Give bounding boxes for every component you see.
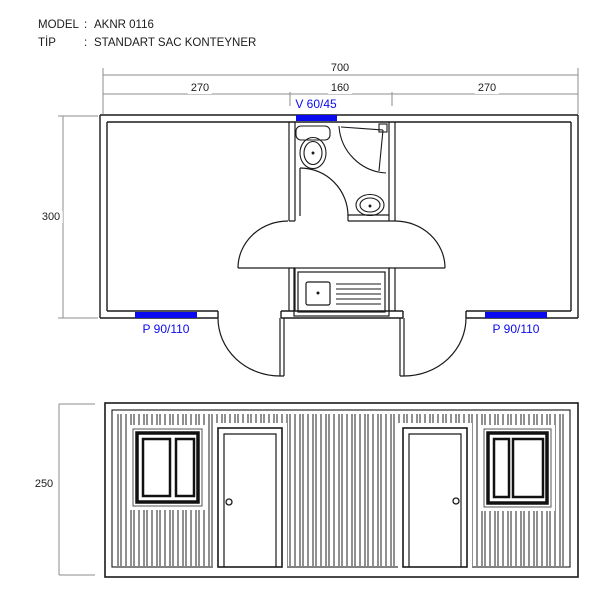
top-window-marker: [296, 115, 337, 121]
top-window-size-label: V 60/45: [295, 97, 336, 111]
bottom-right-window-size-label: P 90/110: [493, 322, 540, 336]
elevation-door-right: [398, 423, 472, 568]
door-knob-left: [226, 499, 232, 505]
front-elevation: [59, 403, 578, 577]
type-separator: :: [84, 34, 94, 52]
type-label: TİP: [38, 34, 84, 52]
elevation-window-left: [129, 425, 206, 510]
dim-total-width-label: 700: [328, 62, 352, 74]
plan-exterior-walls: [100, 115, 578, 318]
bottom-left-window-size-label: P 90/110: [143, 322, 190, 336]
toilet: [296, 126, 330, 169]
model-value: AKNR 0116: [94, 16, 154, 34]
bottom-right-window-marker: [485, 312, 547, 318]
right-room-door: [395, 221, 445, 268]
model-separator: :: [84, 16, 94, 34]
bottom-left-window-marker: [135, 312, 197, 318]
kitchen-counter: [294, 268, 389, 316]
plan-window-markers: [135, 115, 547, 318]
elevation-dimension-lines: [59, 404, 95, 575]
dim-left-segment-label: 270: [188, 82, 212, 94]
type-line: TİP:STANDART SAC KONTEYNER: [38, 34, 256, 52]
dim-mid-segment-label: 160: [328, 82, 352, 94]
bathroom-sink: [356, 195, 384, 216]
elevation-window-right: [480, 425, 555, 511]
left-entrance-door: [218, 318, 284, 376]
dim-elevation-height-label: 250: [32, 478, 56, 490]
left-room-door: [238, 221, 289, 268]
title-block: MODEL:AKNR 0116 TİP:STANDART SAC KONTEYN…: [38, 16, 256, 52]
technical-drawing-sheet: MODEL:AKNR 0116 TİP:STANDART SAC KONTEYN…: [0, 0, 600, 600]
dim-right-segment-label: 270: [475, 82, 499, 94]
door-knob-right: [453, 498, 459, 504]
drawing-linework: [0, 0, 600, 600]
shower: [339, 124, 387, 173]
plan-partition-walls: [289, 122, 395, 311]
type-value: STANDART SAC KONTEYNER: [94, 34, 256, 52]
elevation-door-left: [213, 423, 287, 568]
bathroom-door: [300, 168, 348, 216]
model-label: MODEL: [38, 16, 84, 34]
model-line: MODEL:AKNR 0116: [38, 16, 256, 34]
right-entrance-door: [400, 318, 466, 376]
dim-plan-depth-label: 300: [39, 211, 63, 223]
